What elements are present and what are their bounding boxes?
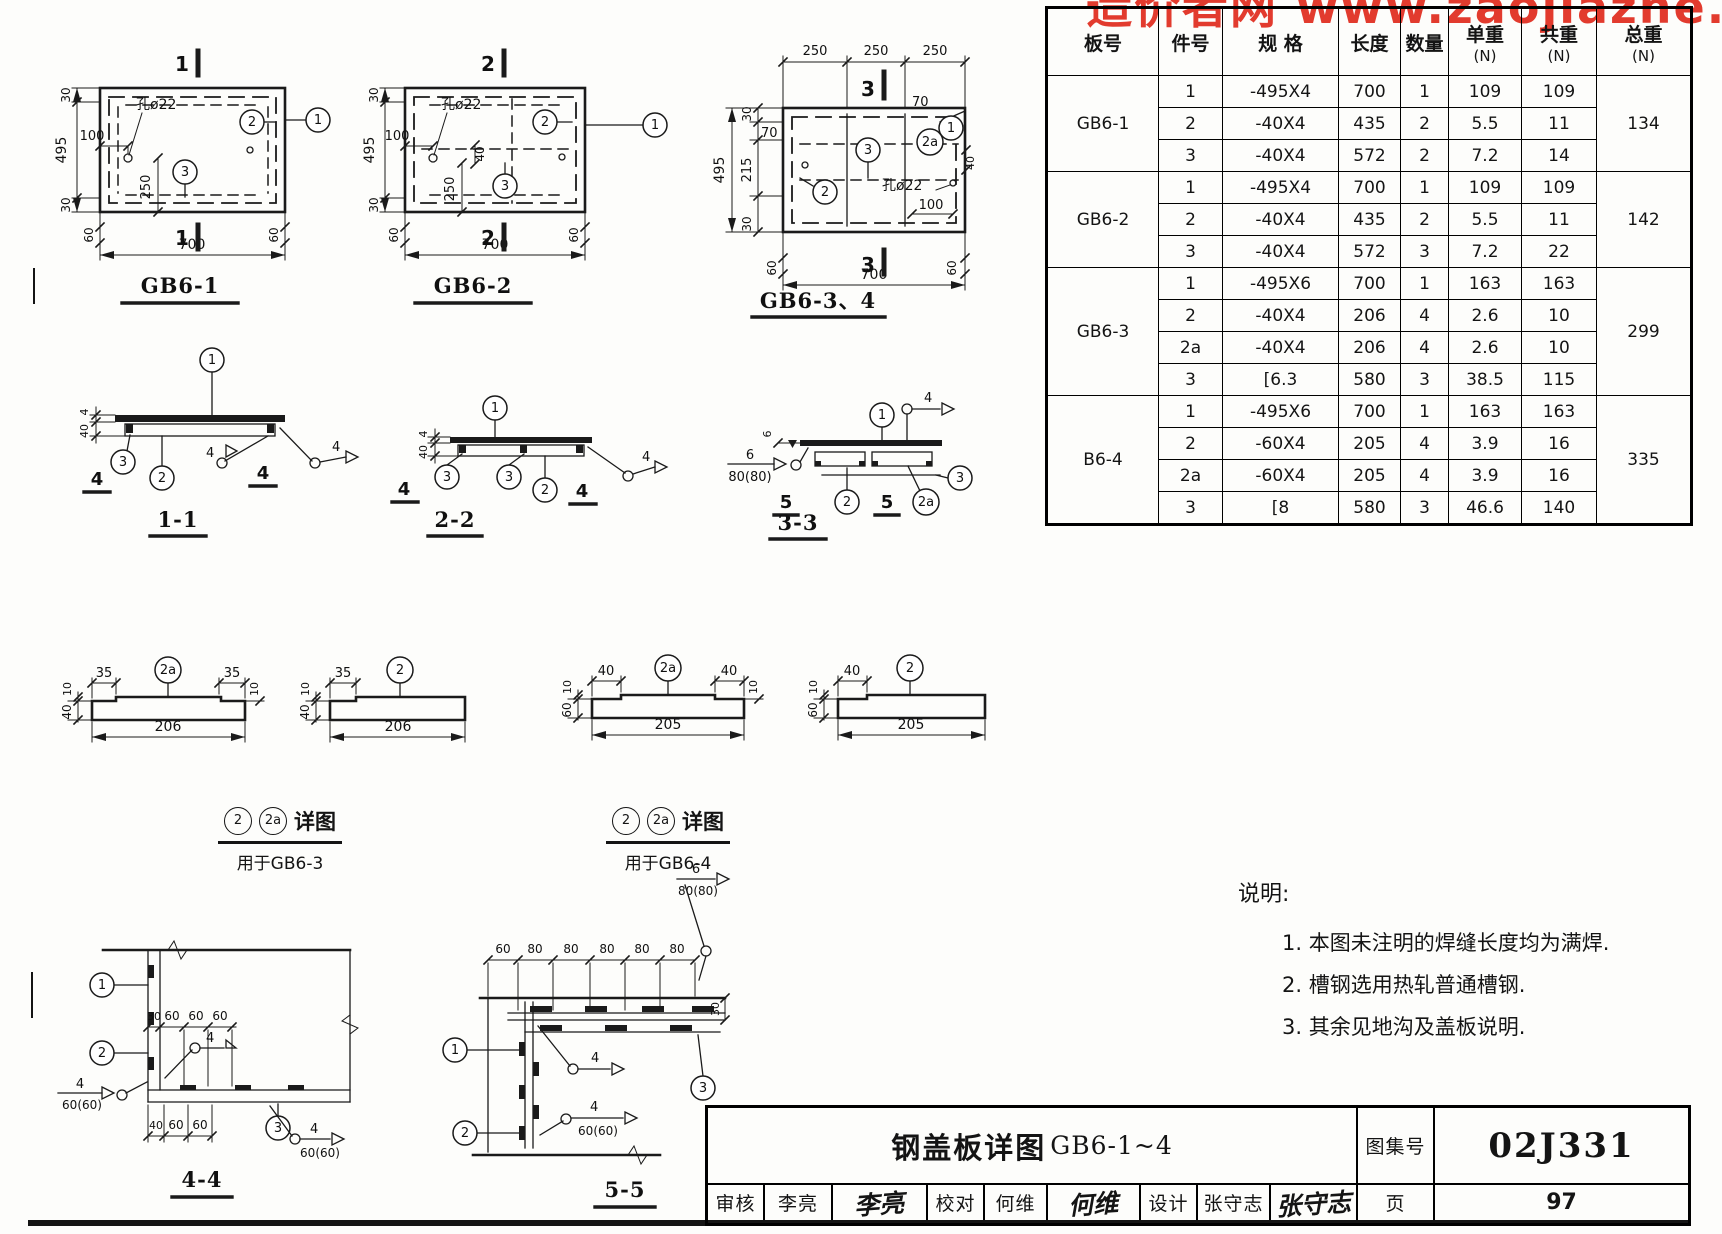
- caption-row: 2 2a 详图: [218, 806, 342, 844]
- detail-title: 4-4: [172, 1167, 232, 1197]
- callout-1: 1: [483, 396, 507, 437]
- svg-text:2: 2: [906, 661, 914, 676]
- checker-name: 何维: [985, 1183, 1048, 1220]
- svg-text:495: 495: [362, 137, 378, 164]
- note-item: 2. 槽钢选用热轧普通槽钢.: [1282, 964, 1609, 1006]
- svg-text:35: 35: [224, 666, 241, 681]
- cell: 1: [1401, 396, 1449, 428]
- cell: 10: [1522, 300, 1597, 332]
- callout-2a-badge: 2a: [259, 807, 287, 835]
- frame-plate: [125, 424, 275, 436]
- corner-detail-5-5: 60 80 80 80 80 80 6 80(80): [380, 830, 735, 1220]
- svg-text:1-1: 1-1: [158, 507, 199, 532]
- svg-text:5: 5: [881, 492, 894, 513]
- dim-40-left: 40: [588, 664, 625, 696]
- reviewer-label: 审核: [708, 1183, 765, 1220]
- designer-signature: 张守志: [1271, 1183, 1358, 1220]
- cell: 2: [1159, 204, 1223, 236]
- cell: 3: [1159, 140, 1223, 172]
- drawing-sheet: 造价者网 www.zaojiazhe.co 1 30 495 30: [0, 0, 1722, 1234]
- small-hole: [247, 147, 253, 153]
- svg-text:250: 250: [139, 175, 154, 200]
- dim-length: 206: [92, 719, 245, 742]
- cell: 205: [1339, 460, 1401, 492]
- dim-40-left: 40: [834, 664, 871, 696]
- dim-length: 205: [592, 717, 744, 740]
- svg-text:10: 10: [248, 682, 261, 696]
- svg-text:1: 1: [314, 113, 322, 128]
- col-header: 板号: [1047, 8, 1159, 76]
- svg-text:2a: 2a: [660, 661, 676, 676]
- small-hole: [559, 154, 565, 160]
- total-weight: 142: [1597, 172, 1692, 268]
- callout-3: 3: [856, 138, 880, 178]
- note-item: 1. 本图未注明的焊缝长度均为满焊.: [1282, 922, 1609, 964]
- svg-text:3: 3: [861, 77, 875, 101]
- svg-text:1: 1: [947, 121, 955, 136]
- callout-1: 1: [285, 108, 330, 132]
- svg-text:1: 1: [451, 1043, 459, 1058]
- right-side: 70 40 孔ø22 100: [882, 95, 977, 218]
- cell: -40X4: [1223, 204, 1339, 236]
- bar-profile: [330, 697, 465, 720]
- hole-dimensions: 100 孔ø22 250: [80, 97, 253, 216]
- plan-gb6-1: 1 30 495 30 100 孔ø22: [30, 45, 340, 320]
- callout-1: 1: [443, 1038, 520, 1062]
- dim-left-10-60: 10 60: [806, 680, 838, 722]
- reviewer-name: 李亮: [765, 1183, 833, 1220]
- cell: 2: [1159, 108, 1223, 140]
- svg-text:60: 60: [567, 227, 581, 242]
- svg-text:60: 60: [188, 1009, 203, 1023]
- cell: -495X4: [1223, 76, 1339, 108]
- svg-text:80: 80: [599, 942, 614, 956]
- cell: 572: [1339, 236, 1401, 268]
- total-weight: 299: [1597, 268, 1692, 396]
- cover-plate: [800, 440, 942, 446]
- detail-title: 5-5: [595, 1177, 655, 1207]
- svg-text:4: 4: [590, 1100, 598, 1115]
- callout-3: 3: [111, 435, 135, 474]
- svg-text:10: 10: [807, 680, 820, 694]
- svg-text:10: 10: [299, 682, 312, 696]
- section-title: 1-1: [150, 507, 206, 536]
- col-header: 总重(N): [1597, 8, 1692, 76]
- cell: 3: [1401, 492, 1449, 525]
- cell: -40X4: [1223, 236, 1339, 268]
- cell: -60X4: [1223, 460, 1339, 492]
- drawing-title-cell: 钢盖板详图 GB6-1~4: [708, 1108, 1358, 1183]
- svg-text:2a: 2a: [160, 663, 176, 678]
- cell: 3: [1401, 364, 1449, 396]
- page-number: 97: [1546, 1190, 1577, 1215]
- svg-text:60: 60: [212, 1009, 227, 1023]
- col-header: 单重(N): [1449, 8, 1522, 76]
- svg-text:4: 4: [206, 1031, 214, 1046]
- svg-text:1: 1: [175, 52, 189, 76]
- svg-text:80: 80: [669, 942, 684, 956]
- drawing-number: GB6-1~4: [1050, 1131, 1172, 1160]
- cell: 11: [1522, 204, 1597, 236]
- cell: -60X4: [1223, 428, 1339, 460]
- col-header: 长度: [1339, 8, 1401, 76]
- cell: 2: [1159, 428, 1223, 460]
- svg-text:495: 495: [54, 137, 70, 164]
- cell: [6.3: [1223, 364, 1339, 396]
- section-2-2: 1 4 40 3 3 2 4: [340, 335, 660, 547]
- cell: 109: [1449, 172, 1522, 204]
- svg-text:60(60): 60(60): [62, 1098, 102, 1112]
- svg-text:3: 3: [699, 1081, 707, 1096]
- top-dims: 60 80 80 80 80 80: [484, 942, 699, 1010]
- svg-text:40: 40: [417, 445, 430, 459]
- svg-text:2: 2: [481, 52, 495, 76]
- detail-2-gb6-4: 40 2 10 60 205: [790, 630, 1025, 765]
- section-mark-2-top: 2: [481, 51, 504, 76]
- cell: -495X6: [1223, 396, 1339, 428]
- svg-text:4: 4: [78, 409, 91, 416]
- plate-no: GB6-2: [1047, 172, 1159, 268]
- detail-2a-gb6-4: 40 40 2a 10 60 10 205: [530, 630, 780, 765]
- cut-mark-4-right: 4: [570, 481, 596, 504]
- svg-text:3: 3: [501, 179, 509, 194]
- svg-text:206: 206: [155, 719, 182, 735]
- detail-2-gb6-3: 35 2 10 40 206: [280, 630, 510, 765]
- cell: 4: [1401, 428, 1449, 460]
- svg-text:80(80): 80(80): [728, 470, 771, 485]
- cell: 1: [1401, 172, 1449, 204]
- cell: 3: [1159, 236, 1223, 268]
- svg-text:30: 30: [740, 216, 754, 231]
- channels: [815, 452, 940, 475]
- cell: 14: [1522, 140, 1597, 172]
- svg-text:60: 60: [806, 702, 820, 717]
- svg-text:40: 40: [60, 704, 74, 719]
- cell: 3: [1159, 492, 1223, 525]
- svg-text:80: 80: [634, 942, 649, 956]
- svg-text:495: 495: [712, 157, 728, 184]
- svg-text:4: 4: [591, 1051, 599, 1066]
- header-row: 板号 件号 规 格 长度 数量 单重(N) 共重(N) 总重(N): [1047, 8, 1692, 76]
- svg-text:250: 250: [443, 177, 458, 202]
- svg-text:60: 60: [560, 702, 574, 717]
- callout-2a: 2a: [908, 466, 939, 515]
- section-title: 2-2: [428, 507, 482, 536]
- dim-35-left: 35: [88, 666, 120, 698]
- svg-text:35: 35: [335, 666, 352, 681]
- cell: 700: [1339, 396, 1401, 428]
- cell: 700: [1339, 172, 1401, 204]
- callout-1: 1: [90, 973, 148, 997]
- cover-plate: [450, 437, 592, 443]
- svg-text:30: 30: [709, 1002, 722, 1016]
- weld-mark-left: 4 60(60): [58, 1077, 147, 1112]
- cell: 580: [1339, 492, 1401, 525]
- callout-3-mid: 3: [497, 454, 524, 489]
- col-header: 规 格: [1223, 8, 1339, 76]
- page-label-cell: 页: [1358, 1183, 1435, 1220]
- dim-35-left: 35: [326, 666, 360, 698]
- spec-table: 板号 件号 规 格 长度 数量 单重(N) 共重(N) 总重(N) GB6-1 …: [1045, 6, 1693, 526]
- svg-text:4: 4: [924, 391, 932, 406]
- svg-text:3: 3: [864, 143, 872, 158]
- plan-gb6-2: 2 30 495 30 100 孔ø22: [340, 45, 670, 320]
- cut-mark-5-right: 5: [875, 492, 899, 515]
- plan-title: GB6-1: [122, 273, 238, 303]
- svg-text:2-2: 2-2: [435, 507, 476, 532]
- svg-text:40: 40: [964, 156, 977, 170]
- cell: 3: [1159, 364, 1223, 396]
- cell: 115: [1522, 364, 1597, 396]
- svg-text:1: 1: [878, 408, 886, 423]
- callout-2: 2: [533, 456, 557, 502]
- svg-text:4-4: 4-4: [182, 1167, 223, 1192]
- callout-3-left: 3: [435, 454, 462, 489]
- structure: [473, 998, 725, 1164]
- section-mark-1-top: 1: [175, 51, 198, 76]
- plate-no: GB6-3: [1047, 268, 1159, 396]
- section-mark-3-top: 3: [861, 72, 884, 101]
- cell: 206: [1339, 300, 1401, 332]
- svg-text:3: 3: [443, 470, 451, 485]
- cell: 46.6: [1449, 492, 1522, 525]
- svg-text:4: 4: [76, 1077, 84, 1092]
- structure: [103, 941, 358, 1102]
- dim-40-right: 40: [711, 664, 748, 696]
- left-dimensions: 30 495 30: [362, 87, 405, 212]
- svg-text:3: 3: [861, 253, 875, 277]
- cell: 5.5: [1449, 108, 1522, 140]
- svg-text:60(60): 60(60): [578, 1124, 618, 1138]
- plan-title: GB6-2: [415, 273, 531, 303]
- cell: -40X4: [1223, 108, 1339, 140]
- cell: 2.6: [1449, 300, 1522, 332]
- atlas-label-cell: 图集号: [1358, 1108, 1435, 1183]
- svg-text:10: 10: [61, 682, 74, 696]
- callout-2a: 2a: [655, 655, 681, 695]
- svg-text:80: 80: [527, 942, 542, 956]
- svg-text:100: 100: [80, 129, 105, 144]
- svg-text:4: 4: [310, 1122, 318, 1137]
- cell: 163: [1449, 268, 1522, 300]
- cell: 435: [1339, 108, 1401, 140]
- cell: 109: [1522, 76, 1597, 108]
- plan-title: GB6-3、4: [752, 288, 885, 317]
- svg-text:10: 10: [561, 680, 574, 694]
- dim-35-right: 35: [215, 666, 249, 698]
- total-weight: 134: [1597, 76, 1692, 172]
- cell: 16: [1522, 428, 1597, 460]
- callout-1: 1: [200, 348, 224, 415]
- atlas-number: 02J331: [1488, 1126, 1634, 1166]
- svg-text:60: 60: [164, 1009, 179, 1023]
- weld-mark-4-mid: 4: [165, 1031, 236, 1078]
- cell: 4: [1401, 460, 1449, 492]
- designer-label: 设计: [1141, 1183, 1198, 1220]
- cell: 11: [1522, 108, 1597, 140]
- cell: 2.6: [1449, 332, 1522, 364]
- corner-detail-4-4: 1 30 60 60 60 4 2 4 60(60): [30, 850, 365, 1205]
- dim-left-10-60: 10 60: [560, 680, 592, 722]
- table-row: B6-4 1 -495X6 700 1 163 163 335: [1047, 396, 1692, 428]
- cell: 572: [1339, 140, 1401, 172]
- notes-heading: 说明:: [1238, 876, 1289, 908]
- weld-6-left-edge: 6: [761, 431, 800, 449]
- bar-profile: [592, 695, 744, 718]
- cell: 435: [1339, 204, 1401, 236]
- callout-2: 2: [453, 1121, 520, 1145]
- cell: -40X4: [1223, 300, 1339, 332]
- svg-text:GB6-2: GB6-2: [434, 273, 513, 298]
- svg-text:5-5: 5-5: [605, 1177, 646, 1202]
- left-dimensions: 4 40: [78, 407, 125, 443]
- cut-mark-4-left: 4: [392, 479, 418, 502]
- plan-gb6-3-4: 250 250 250 3 495 30 70 2: [640, 10, 985, 322]
- cover-plate: [115, 415, 285, 422]
- frame-plate: [458, 445, 584, 456]
- cell: 163: [1522, 396, 1597, 428]
- svg-text:205: 205: [898, 717, 925, 733]
- cell: 1: [1159, 396, 1223, 428]
- title-block: 钢盖板详图 GB6-1~4 图集号 02J331 审核 李亮 李亮 校对 何维 …: [705, 1105, 1691, 1226]
- svg-text:2a: 2a: [918, 495, 934, 510]
- svg-text:4: 4: [206, 446, 214, 461]
- cell: [8: [1223, 492, 1339, 525]
- section-3-3: 1 4 6 6 80(80): [650, 330, 985, 547]
- cell: 205: [1339, 428, 1401, 460]
- svg-text:4: 4: [576, 481, 589, 502]
- bottom-dims: 40 60 60: [144, 1105, 216, 1142]
- section-title: 3-3: [770, 510, 826, 539]
- note-item: 3. 其余见地沟及盖板说明.: [1282, 1006, 1609, 1048]
- page-number-cell: 97: [1435, 1183, 1688, 1220]
- designer-name: 张守志: [1198, 1183, 1271, 1220]
- cell: 580: [1339, 364, 1401, 396]
- svg-text:2: 2: [541, 115, 549, 130]
- svg-text:40: 40: [473, 146, 487, 161]
- dim-right-10: 10: [245, 682, 264, 705]
- callout-3: 3: [493, 163, 517, 198]
- svg-text:30: 30: [367, 87, 381, 102]
- callout-2: 2: [897, 655, 923, 695]
- svg-text:6: 6: [692, 862, 700, 877]
- plate-outline: [783, 108, 965, 232]
- callout-2: 2: [240, 110, 276, 134]
- cell: 2a: [1159, 460, 1223, 492]
- svg-text:80(80): 80(80): [678, 884, 718, 898]
- svg-text:40: 40: [721, 664, 738, 679]
- cell: 2a: [1159, 332, 1223, 364]
- cell: 1: [1159, 268, 1223, 300]
- svg-text:10: 10: [747, 680, 760, 694]
- svg-text:1: 1: [208, 353, 216, 368]
- drawing-title: 钢盖板详图: [891, 1125, 1046, 1167]
- svg-text:2: 2: [843, 495, 851, 510]
- hole-label: 孔ø22: [441, 97, 481, 113]
- cell: 16: [1522, 460, 1597, 492]
- cell: 3.9: [1449, 428, 1522, 460]
- svg-text:250: 250: [864, 44, 889, 59]
- svg-text:3: 3: [181, 165, 189, 180]
- cell: 38.5: [1449, 364, 1522, 396]
- callout-3: 3: [173, 160, 197, 197]
- svg-text:30: 30: [59, 197, 73, 212]
- cell: 4: [1401, 332, 1449, 364]
- callout-2: 2: [150, 436, 174, 490]
- svg-text:40: 40: [78, 424, 91, 438]
- svg-text:250: 250: [803, 44, 828, 59]
- cut-mark-4-left: 4: [84, 469, 110, 492]
- callout-3: 3: [266, 1104, 290, 1140]
- cell: 109: [1522, 172, 1597, 204]
- cell: 2: [1401, 108, 1449, 140]
- svg-text:215: 215: [740, 158, 755, 183]
- svg-text:6: 6: [761, 431, 774, 438]
- cell: 1: [1401, 76, 1449, 108]
- dim-right-10: 10: [744, 680, 763, 703]
- weld-mark-4-mid: 4: [538, 1026, 624, 1075]
- svg-text:40: 40: [298, 704, 312, 719]
- plate-no: B6-4: [1047, 396, 1159, 525]
- svg-text:4: 4: [417, 431, 430, 438]
- svg-text:3: 3: [274, 1121, 282, 1136]
- svg-text:60: 60: [945, 260, 959, 275]
- cell: 140: [1522, 492, 1597, 525]
- weld-mark-4-top: 4: [902, 391, 954, 440]
- left-dimensions: 4 40: [417, 429, 458, 463]
- callout-2: 2: [533, 110, 572, 134]
- reviewer-signature: 李亮: [833, 1183, 928, 1220]
- cell: -495X4: [1223, 172, 1339, 204]
- col-header: 数量: [1401, 8, 1449, 76]
- atlas-number-cell: 02J331: [1435, 1108, 1688, 1183]
- svg-text:30: 30: [59, 87, 73, 102]
- svg-text:3: 3: [119, 455, 127, 470]
- left-dimensions: 30 495 30: [54, 87, 100, 212]
- hole-label: 孔ø22: [136, 97, 176, 113]
- svg-text:35: 35: [96, 666, 113, 681]
- col-header: 共重(N): [1522, 8, 1597, 76]
- checker-signature: 何维: [1048, 1183, 1141, 1220]
- cell: 1: [1159, 76, 1223, 108]
- svg-text:60: 60: [267, 227, 281, 242]
- callout-2a: 2a: [155, 657, 181, 697]
- svg-text:2: 2: [541, 483, 549, 498]
- cell: -40X4: [1223, 332, 1339, 364]
- section-1-1: 1 4 40 3 2 4 4: [40, 335, 340, 547]
- table-row: GB6-3 1 -495X6 700 1 163 163 299: [1047, 268, 1692, 300]
- svg-text:4: 4: [91, 469, 104, 490]
- svg-text:2a: 2a: [922, 135, 938, 150]
- dim-left-10-40: 10 40: [60, 682, 92, 724]
- svg-text:2: 2: [98, 1046, 106, 1061]
- table-row: GB6-2 1 -495X4 700 1 109 109 142: [1047, 172, 1692, 204]
- svg-text:70: 70: [761, 126, 778, 141]
- callout-2-badge: 2: [224, 807, 252, 835]
- svg-text:3: 3: [505, 470, 513, 485]
- cell: 206: [1339, 332, 1401, 364]
- callout-2: 2: [387, 657, 413, 697]
- cell: -40X4: [1223, 140, 1339, 172]
- svg-text:3-3: 3-3: [778, 510, 819, 535]
- svg-text:60(60): 60(60): [300, 1146, 340, 1160]
- callout-2: 2: [800, 178, 837, 204]
- cell: 10: [1522, 332, 1597, 364]
- svg-text:60: 60: [168, 1118, 183, 1132]
- svg-text:100: 100: [385, 129, 410, 144]
- table-row: GB6-1 1 -495X4 700 1 109 109 134: [1047, 76, 1692, 108]
- cell: 2: [1159, 300, 1223, 332]
